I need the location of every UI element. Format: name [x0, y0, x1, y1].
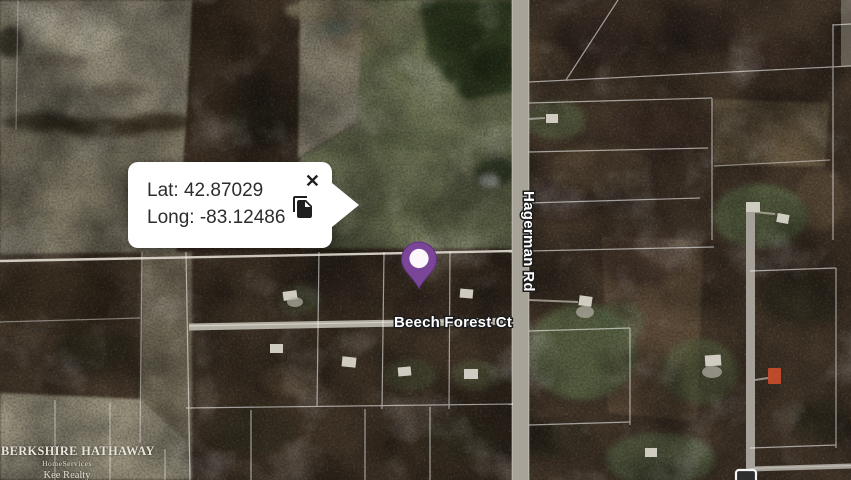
east-road: [746, 206, 755, 480]
tooltip-pointer: [332, 183, 359, 227]
copy-coordinates-button[interactable]: [291, 195, 315, 219]
clipped-label-fragment: [736, 470, 756, 480]
map-viewport: Hagerman Rd Beech Forest Ct Lat: 42.8702…: [0, 0, 851, 480]
copy-icon: [291, 195, 315, 219]
close-button[interactable]: ✕: [303, 170, 322, 192]
road-label-beech-forest: Beech Forest Ct: [394, 314, 512, 331]
longitude-value: Long: -83.12486: [147, 204, 285, 231]
road-label-hagerman: Hagerman Rd: [520, 191, 537, 292]
coordinates-tooltip: Lat: 42.87029 Long: -83.12486 ✕: [128, 162, 332, 248]
red-house: [768, 368, 781, 384]
latitude-value: Lat: 42.87029: [147, 177, 263, 204]
